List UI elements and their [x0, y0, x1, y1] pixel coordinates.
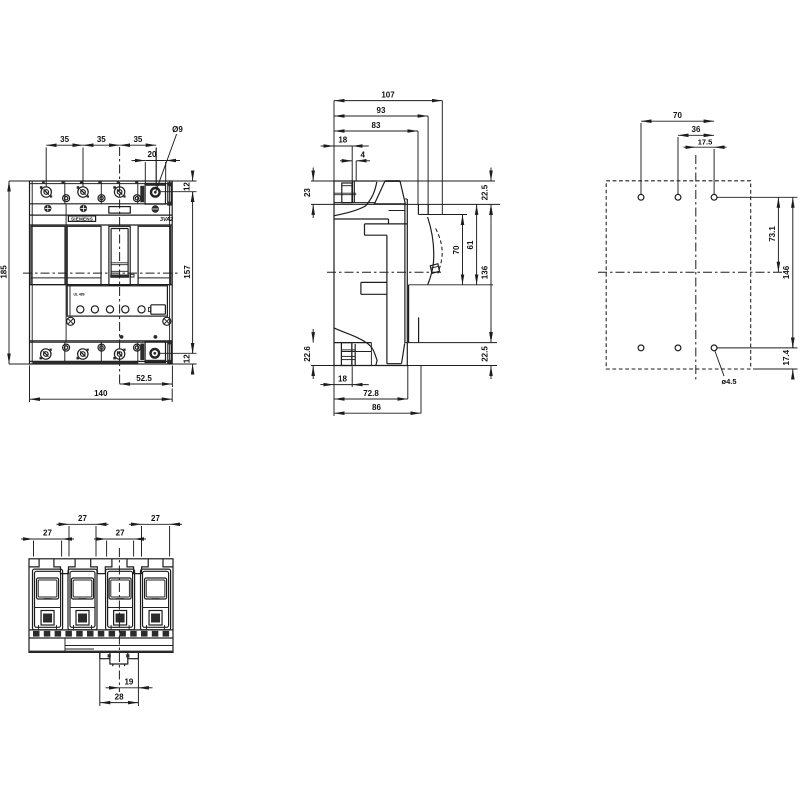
svg-text:ø4.5: ø4.5: [721, 377, 736, 386]
svg-text:22.6: 22.6: [303, 346, 312, 362]
svg-text:35: 35: [133, 135, 142, 144]
svg-text:UL 489: UL 489: [73, 292, 84, 296]
svg-text:28: 28: [115, 692, 124, 701]
svg-text:27: 27: [78, 514, 87, 523]
svg-text:23: 23: [303, 188, 312, 197]
svg-text:12: 12: [183, 354, 192, 363]
svg-text:185: 185: [0, 265, 9, 279]
svg-text:83: 83: [372, 121, 381, 130]
svg-text:3VA2: 3VA2: [160, 217, 173, 223]
svg-text:86: 86: [372, 403, 381, 412]
svg-text:61: 61: [466, 240, 475, 249]
svg-text:17.5: 17.5: [698, 137, 713, 146]
svg-text:4: 4: [360, 150, 365, 159]
svg-text:Ø9: Ø9: [172, 125, 183, 134]
svg-text:52.5: 52.5: [136, 374, 152, 383]
svg-text:157: 157: [183, 265, 192, 279]
svg-text:22.5: 22.5: [481, 346, 490, 362]
svg-text:18: 18: [338, 374, 347, 383]
svg-text:72.8: 72.8: [363, 389, 379, 398]
svg-text:19: 19: [124, 678, 133, 687]
svg-text:35: 35: [60, 135, 69, 144]
svg-text:35: 35: [97, 135, 106, 144]
svg-text:20: 20: [148, 150, 157, 159]
svg-text:22.5: 22.5: [481, 184, 490, 200]
svg-text:136: 136: [481, 265, 490, 279]
svg-text:93: 93: [377, 106, 386, 115]
svg-text:146: 146: [782, 265, 791, 279]
svg-text:27: 27: [43, 529, 52, 538]
svg-text:70: 70: [452, 245, 461, 254]
svg-text:17.4: 17.4: [782, 349, 791, 365]
svg-text:73.1: 73.1: [768, 226, 777, 242]
svg-text:27: 27: [116, 529, 125, 538]
svg-text:70: 70: [673, 111, 682, 120]
svg-text:140: 140: [94, 389, 108, 398]
svg-text:SIEMENS: SIEMENS: [71, 216, 93, 221]
svg-text:12: 12: [183, 182, 192, 191]
svg-text:36: 36: [692, 125, 701, 134]
svg-text:27: 27: [151, 514, 160, 523]
svg-text:107: 107: [381, 90, 395, 99]
svg-text:18: 18: [338, 136, 347, 145]
